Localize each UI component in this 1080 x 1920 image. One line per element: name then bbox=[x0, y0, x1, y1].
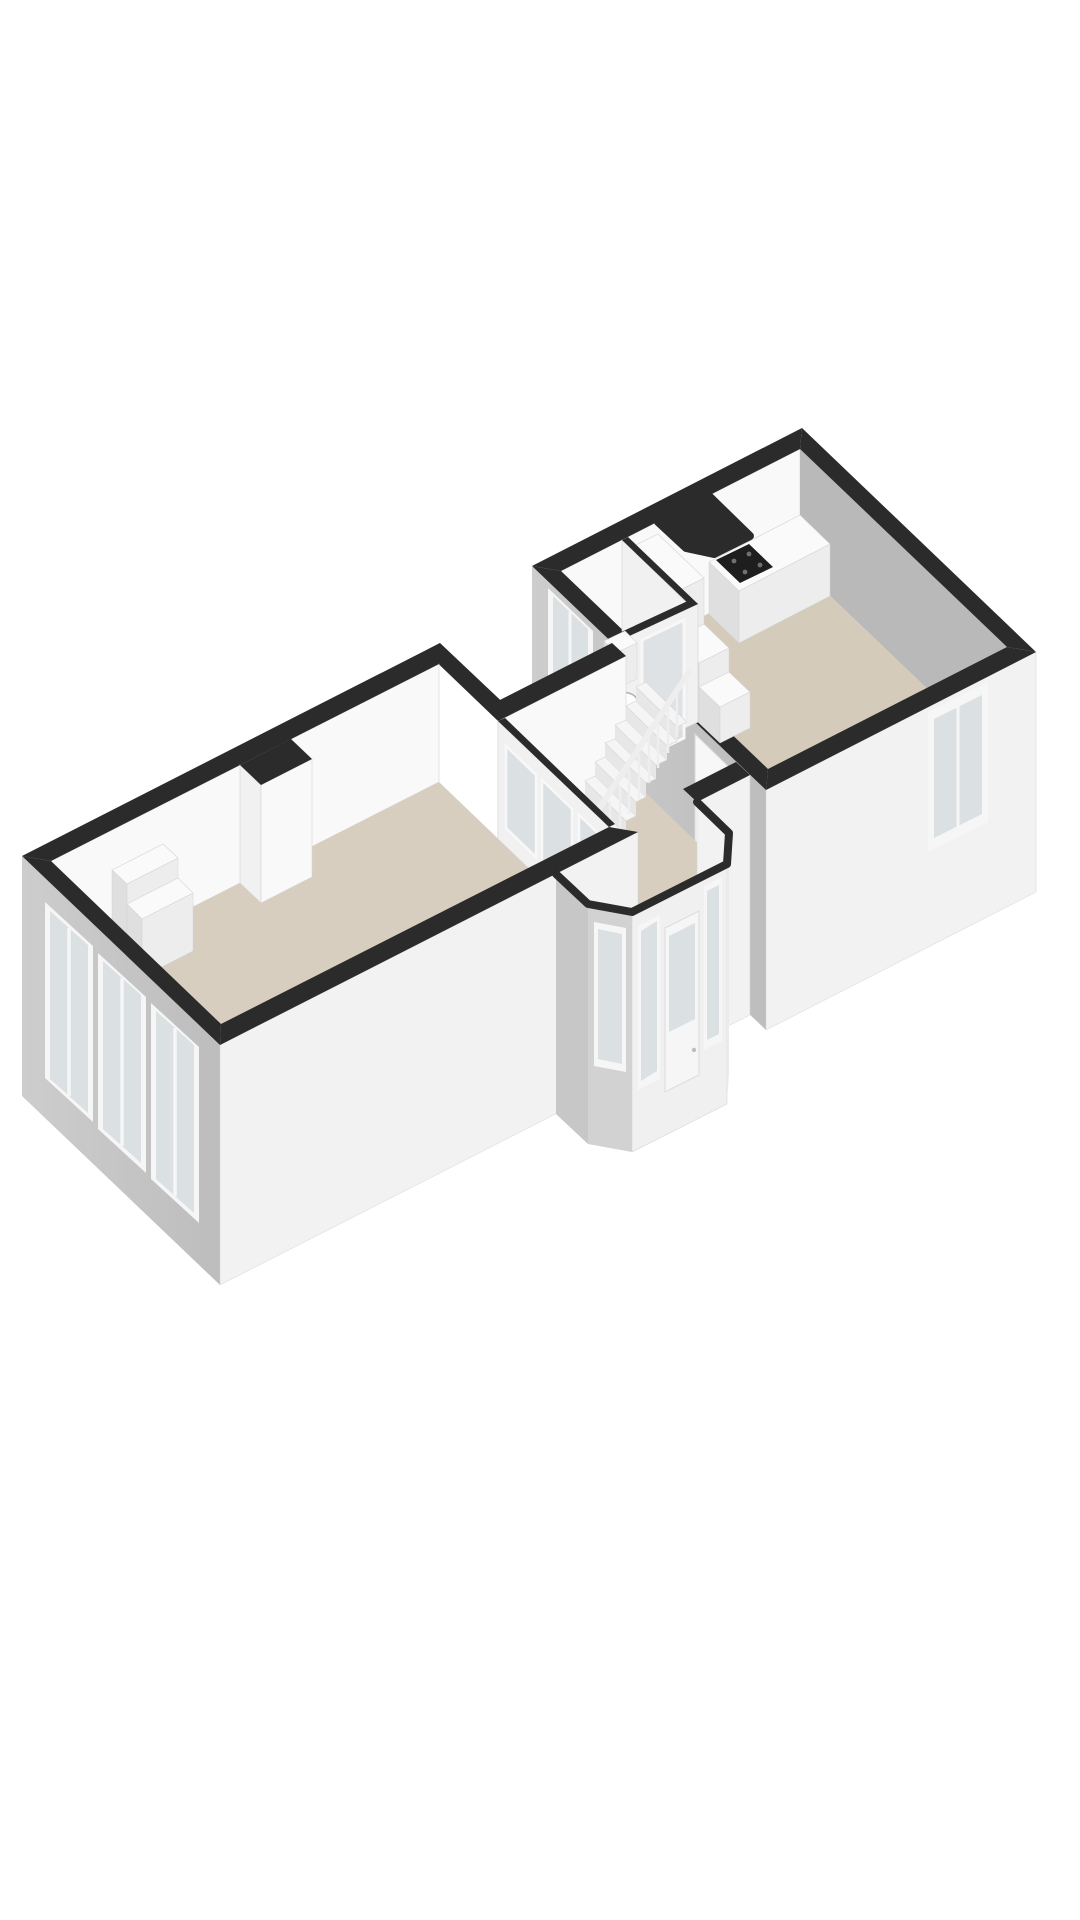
vestibule-chamfer-sw bbox=[588, 904, 632, 1152]
vestibule-chamfer-se bbox=[727, 833, 729, 1104]
kitchen-se-window bbox=[928, 682, 988, 852]
burner bbox=[743, 570, 748, 575]
vestibule-window bbox=[638, 915, 660, 1090]
window-glass bbox=[641, 921, 657, 1081]
door-glass bbox=[669, 923, 695, 1032]
building bbox=[22, 428, 1036, 1285]
window-glass bbox=[598, 929, 622, 1064]
chimney-breast bbox=[240, 739, 312, 903]
chimney-side bbox=[240, 765, 261, 903]
vestibule-sw-face bbox=[556, 874, 588, 1144]
floorplan-canvas bbox=[0, 0, 1080, 1920]
burner bbox=[758, 563, 763, 568]
floorplan-3d-render bbox=[0, 0, 1080, 1920]
entrance-door bbox=[665, 911, 699, 1092]
vestibule-window bbox=[704, 877, 722, 1050]
door-knob bbox=[692, 1048, 696, 1052]
burner bbox=[747, 552, 752, 557]
burner bbox=[732, 559, 737, 564]
window-glass bbox=[707, 885, 719, 1040]
